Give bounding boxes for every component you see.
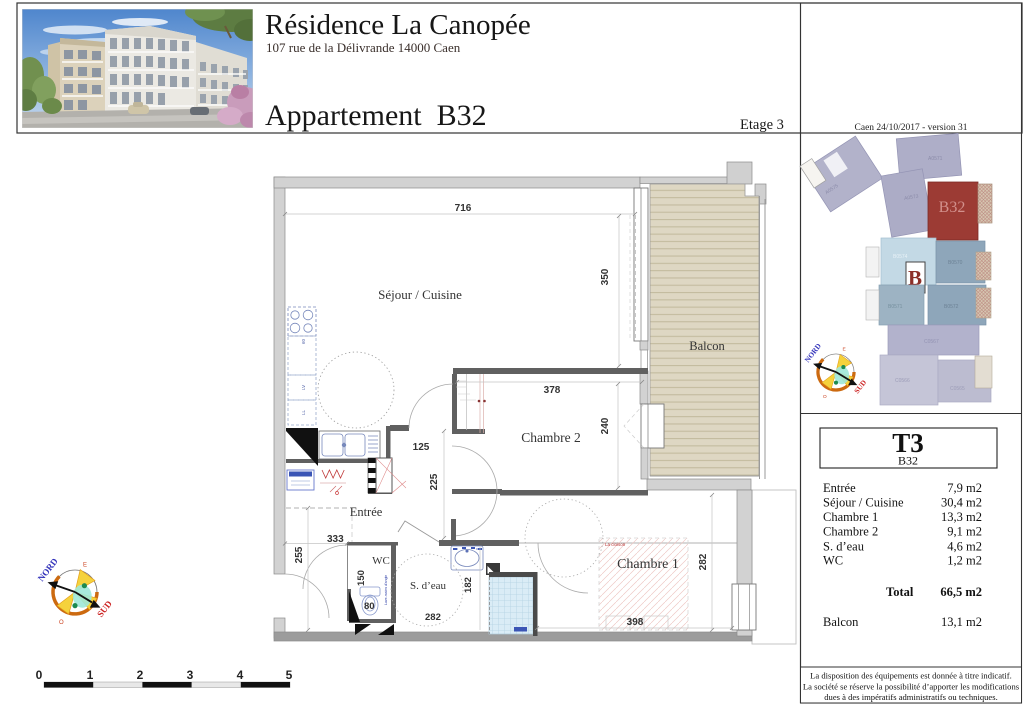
svg-text:240: 240	[600, 417, 611, 434]
svg-text:80: 80	[364, 601, 375, 612]
svg-text:E: E	[83, 563, 87, 569]
svg-text:4,6 m2: 4,6 m2	[947, 540, 982, 554]
svg-text:7,9 m2: 7,9 m2	[947, 481, 982, 495]
svg-text:3: 3	[187, 668, 194, 682]
svg-text:Appartement B32: Appartement B32	[265, 99, 487, 132]
svg-text:1: 1	[87, 668, 94, 682]
svg-text:255: 255	[294, 546, 305, 563]
svg-text:Séjour / Cuisine: Séjour / Cuisine	[378, 287, 462, 302]
svg-text:Chambre 2: Chambre 2	[823, 525, 878, 539]
svg-text:225: 225	[429, 473, 440, 490]
svg-text:C0567: C0567	[924, 339, 939, 345]
svg-text:5: 5	[286, 668, 293, 682]
svg-text:La société se réserve la possi: La société se réserve la possibilité d’a…	[803, 682, 1020, 692]
svg-text:B32: B32	[898, 454, 918, 468]
svg-text:Balcon: Balcon	[823, 615, 859, 629]
svg-text:C0565: C0565	[950, 386, 965, 392]
svg-text:350: 350	[600, 268, 611, 285]
svg-text:Chambre 2: Chambre 2	[521, 430, 581, 445]
svg-text:La disposition des équipements: La disposition des équipements est donné…	[810, 671, 1012, 681]
svg-text:60: 60	[301, 338, 306, 344]
svg-text:2: 2	[137, 668, 144, 682]
svg-text:282: 282	[698, 553, 709, 570]
svg-text:4: 4	[237, 668, 244, 682]
svg-text:B0574: B0574	[893, 254, 908, 260]
svg-text:0: 0	[36, 668, 43, 682]
svg-text:B0571: B0571	[888, 304, 903, 310]
svg-text:182: 182	[463, 577, 474, 593]
svg-text:O: O	[823, 394, 827, 400]
svg-text:Balcon: Balcon	[689, 339, 725, 353]
svg-text:378: 378	[544, 385, 561, 396]
svg-text:9,1 m2: 9,1 m2	[947, 525, 982, 539]
svg-text:La cloison: La cloison	[605, 542, 626, 547]
svg-text:333: 333	[327, 534, 344, 545]
svg-text:S. d’eau: S. d’eau	[410, 580, 447, 592]
svg-text:B32: B32	[939, 199, 966, 216]
svg-text:Séjour / Cuisine: Séjour / Cuisine	[823, 496, 904, 510]
svg-text:C0566: C0566	[895, 378, 910, 384]
svg-text:107 rue de la Délivrande 14000: 107 rue de la Délivrande 14000 Caen	[266, 40, 461, 55]
svg-text:A0571: A0571	[928, 156, 943, 162]
svg-text:B0572: B0572	[944, 304, 959, 310]
svg-text:SUD: SUD	[95, 598, 114, 619]
svg-text:B0570: B0570	[948, 260, 963, 266]
svg-text:E: E	[843, 347, 847, 353]
svg-text:S. d’eau: S. d’eau	[823, 540, 865, 554]
svg-text:Lave-mains d'angle: Lave-mains d'angle	[384, 575, 388, 605]
svg-text:Chambre 1: Chambre 1	[617, 557, 679, 572]
svg-text:LL: LL	[301, 409, 306, 415]
svg-text:Chambre 1: Chambre 1	[823, 510, 878, 524]
svg-text:282: 282	[425, 612, 441, 623]
svg-text:Entrée: Entrée	[823, 481, 856, 495]
svg-text:13,3 m2: 13,3 m2	[941, 510, 982, 524]
svg-text:LV: LV	[301, 385, 306, 390]
svg-text:398: 398	[627, 617, 644, 628]
svg-text:Caen 24/10/2017 - version 31: Caen 24/10/2017 - version 31	[855, 123, 968, 133]
svg-text:30,4 m2: 30,4 m2	[941, 496, 982, 510]
svg-text:WC: WC	[823, 554, 843, 568]
svg-text:dues à des impératifs administ: dues à des impératifs administratifs ou …	[824, 692, 998, 702]
svg-text:13,1 m2: 13,1 m2	[941, 615, 982, 629]
svg-text:Entrée: Entrée	[350, 505, 383, 519]
svg-text:125: 125	[413, 442, 430, 453]
svg-text:150: 150	[356, 570, 367, 586]
svg-text:1,2 m2: 1,2 m2	[947, 554, 982, 568]
svg-text:Total: Total	[886, 585, 914, 599]
svg-text:O: O	[59, 620, 64, 626]
svg-text:66,5 m2: 66,5 m2	[940, 585, 982, 599]
svg-text:716: 716	[455, 203, 472, 214]
svg-text:Etage 3: Etage 3	[740, 117, 784, 133]
svg-text:Résidence La Canopée: Résidence La Canopée	[265, 9, 531, 41]
svg-text:WC: WC	[372, 555, 390, 567]
svg-text:SUD: SUD	[852, 378, 868, 395]
